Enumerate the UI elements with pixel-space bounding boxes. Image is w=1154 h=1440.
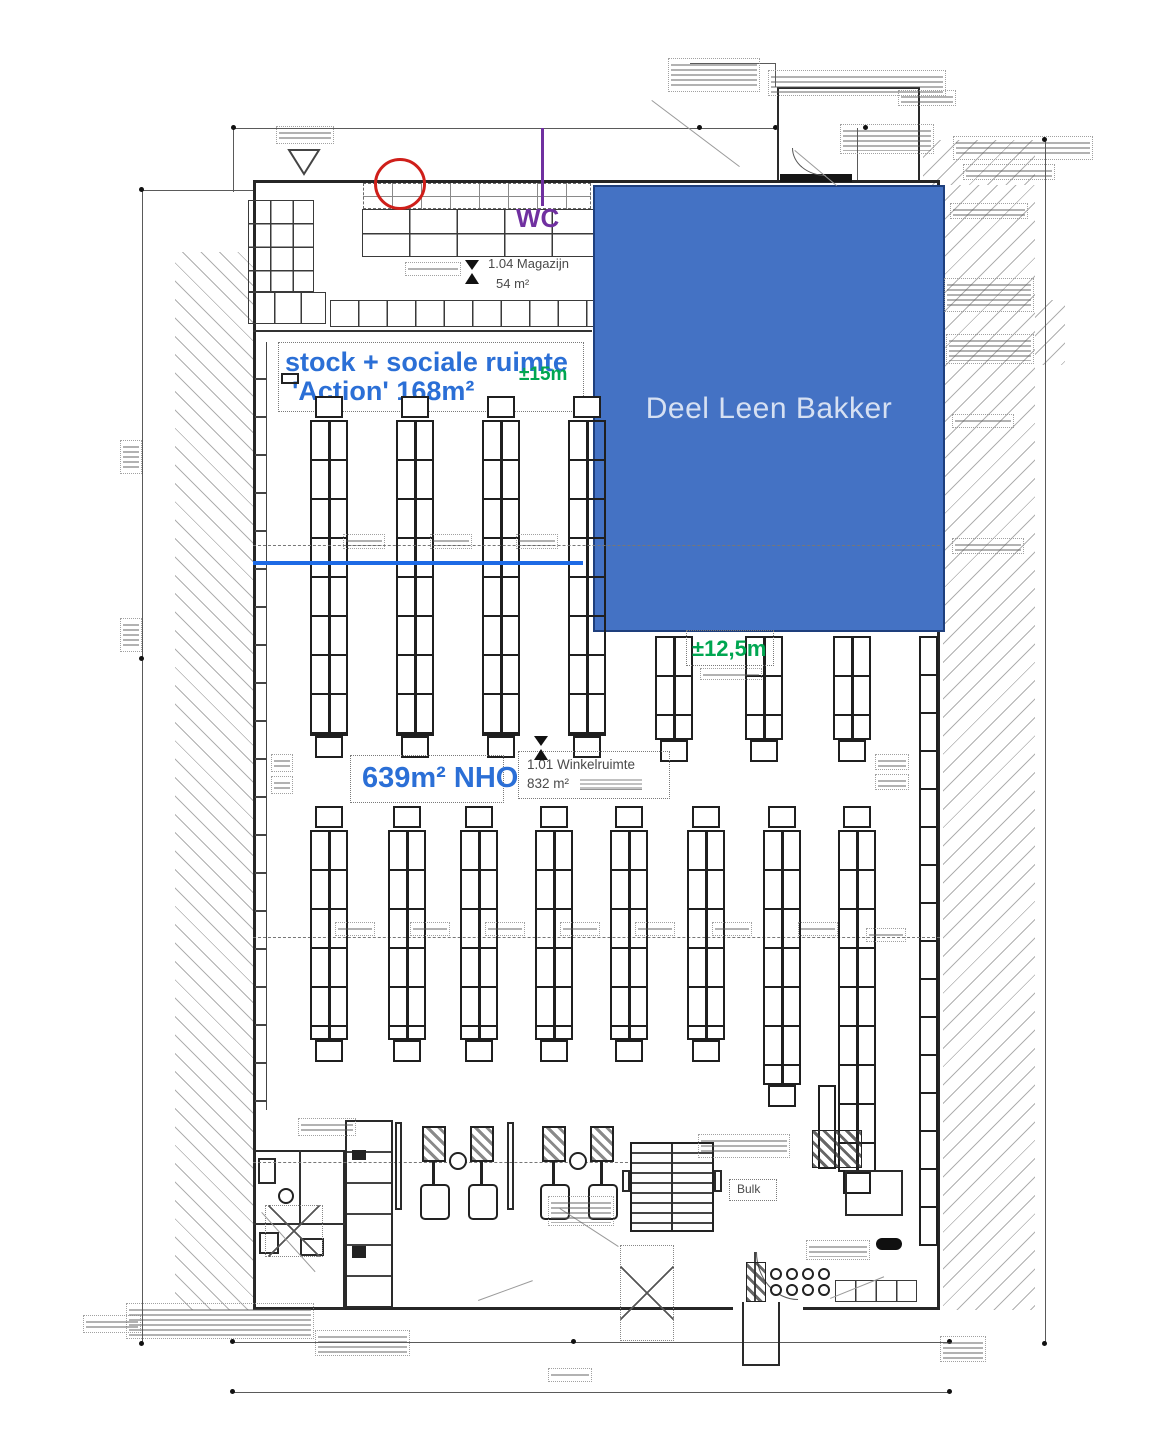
internal-wall-storage [253,330,592,332]
wall-rack-narrow [919,636,938,1246]
annotation-micro-label [410,922,450,936]
entrance-mat-x [620,1245,674,1341]
dimension-line-topleft-h [142,190,253,191]
shelving-rack [763,830,801,1085]
pallet-block-b [248,292,326,324]
annotation-micro-label [83,1315,141,1333]
dimension-line-topleft-v [233,128,234,192]
rack-endcap [750,740,778,762]
rack-endcap [573,396,601,418]
rack-endcap [401,396,429,418]
rack-endcap [540,806,568,828]
shelf-row-long [330,300,600,327]
shelf-grid-solid [362,209,600,257]
fixture-round [278,1188,294,1204]
tick-dot [139,1341,144,1346]
annotation-micro-label [315,1330,410,1356]
annotation-micro-label [712,922,752,936]
winkelruimte-line2: 832 m² [527,776,569,791]
annotation-micro-label [548,1368,592,1382]
triangle-symbol [287,146,321,176]
leen-bakker-overlay: Deel Leen Bakker [593,185,945,632]
back-room-2 [345,1120,393,1308]
annotation-micro-label [516,534,558,549]
bulk-label: Bulk [737,1182,760,1196]
stair-rail [714,1170,722,1192]
trolley [770,1268,782,1280]
storage-block [845,1170,903,1216]
rack-endcap [615,1040,643,1062]
door-bowtie-icon [534,736,548,760]
trolley [802,1284,814,1296]
tick-dot [571,1339,576,1344]
trolley [818,1284,830,1296]
fixture-dark [352,1246,366,1258]
dimension-line-bottom-2 [233,1392,950,1393]
shelving-rack [396,420,434,736]
annotation-micro-label [405,262,461,276]
rack-endcap [540,1040,568,1062]
magazijn-label-line1: 1.04 Magazijn [488,256,569,271]
annotation-micro-label [875,754,909,770]
annotation-micro-label [698,1134,790,1158]
trolley [786,1284,798,1296]
annotation-micro-label [635,922,675,936]
cart-bay-stripe [746,1262,766,1302]
floor-plan-sheet: WC 1.04 Magazijn 54 m² Deel Leen Bakker … [0,0,1154,1440]
dim-125m-label: ±12,5m [692,636,766,662]
checkout-connector [480,1162,483,1186]
trolley [770,1284,782,1296]
red-circle-annotation [374,158,426,210]
fixture-dark [352,1150,366,1160]
wc-leader-line [541,128,544,206]
annotation-micro-label [271,776,293,794]
annotation-micro-label [485,922,525,936]
hatch-right-bump [1035,300,1065,365]
winkelruimte-struck-text [580,779,642,790]
annotation-micro-label [952,538,1024,554]
annotation-micro-label [963,164,1055,180]
vestibule-threshold [780,174,852,182]
annotation-micro-label [950,203,1028,219]
rack-endcap [768,806,796,828]
shelving-rack [482,420,520,736]
tick-dot [139,187,144,192]
annotation-micro-label [548,1196,614,1226]
rack-endcap [692,806,720,828]
tick-dot [139,656,144,661]
checkout-desk-top [590,1126,614,1162]
stock-box-mark [281,373,299,384]
tick-dot [697,125,702,130]
annotation-micro-label [806,1240,870,1260]
rack-endcap [315,806,343,828]
checkout-connector [552,1162,555,1186]
checkout-desk-top [542,1126,566,1162]
annotation-micro-label [271,754,293,772]
annotation-micro-label [940,1336,986,1362]
tick-dot [231,125,236,130]
leader-line [651,100,739,167]
annotation-micro-label [866,928,906,942]
annotation-micro-label [126,1303,314,1339]
tick-dot [947,1389,952,1394]
checkout-pole [507,1122,514,1210]
rack-endcap [838,740,866,762]
left-wall-studs [255,342,267,1110]
rack-endcap [315,396,343,418]
annotation-micro-label [875,774,909,790]
rack-endcap [315,1040,343,1062]
storage-block [812,1130,862,1168]
blue-divider-line [253,561,583,565]
annotation-micro-label [430,534,472,549]
stair-rail [622,1170,630,1192]
rack-endcap [393,806,421,828]
tick-dot [230,1339,235,1344]
annotation-micro-label [335,922,375,936]
trolley [818,1268,830,1280]
pallet-block-a [248,200,314,292]
dim-15m-label: ±15m [519,364,567,386]
annotation-micro-label [560,922,600,936]
aisle-dashed-line-lower [253,937,940,938]
shelving-rack [310,420,348,736]
checkout-table-round [569,1152,587,1170]
magazijn-label-line2: 54 m² [496,276,529,291]
checkout-desk-bottom [420,1184,450,1220]
annotation-micro-label [120,618,142,652]
tick-dot [230,1389,235,1394]
checkout-table-round [449,1152,467,1170]
shelving-rack [568,420,606,736]
dimension-line-right [1045,138,1046,1345]
annotation-micro-label [120,440,142,474]
rack-endcap [692,1040,720,1062]
annotation-micro-label [343,534,385,549]
badge-pill [876,1238,902,1250]
annotation-micro-label [952,414,1014,428]
rack-endcap [843,806,871,828]
rack-endcap [393,1040,421,1062]
wc-label: WC [516,203,559,234]
rack-endcap [615,806,643,828]
rack-endcap [487,396,515,418]
annotation-micro-label [700,668,762,680]
leen-bakker-label: Deel Leen Bakker [646,392,892,426]
shelving-rack [838,830,876,1172]
checkout-desk-top [422,1126,446,1162]
door-bowtie-icon [465,260,479,284]
annotation-micro-label [840,124,934,154]
checkout-pole [395,1122,402,1210]
annotation-micro-label [953,136,1093,160]
tick-dot [1042,1341,1047,1346]
rack-endcap [315,736,343,758]
annotation-micro-label [898,90,956,106]
hatch-left-strip [175,252,253,1310]
dimension-line-left [142,190,143,1345]
rack-endcap [465,1040,493,1062]
annotation-micro-label [668,58,760,92]
shelving-rack [833,636,871,740]
checkout-connector [432,1162,435,1186]
rack-endcap [768,1085,796,1107]
checkout-connector [600,1162,603,1186]
trolley [786,1268,798,1280]
entrance-vestibule-bottom [742,1302,780,1366]
nho-label: 639m² NHO [362,762,518,795]
annotation-micro-label [276,126,334,144]
rack-endcap [465,806,493,828]
checkout-desk-bottom [468,1184,498,1220]
annotation-micro-label [298,1118,356,1136]
checkout-desk-top [470,1126,494,1162]
trolley [802,1268,814,1280]
annotation-micro-label [798,922,838,936]
annotation-micro-label [946,334,1034,364]
annotation-micro-label [944,278,1034,312]
